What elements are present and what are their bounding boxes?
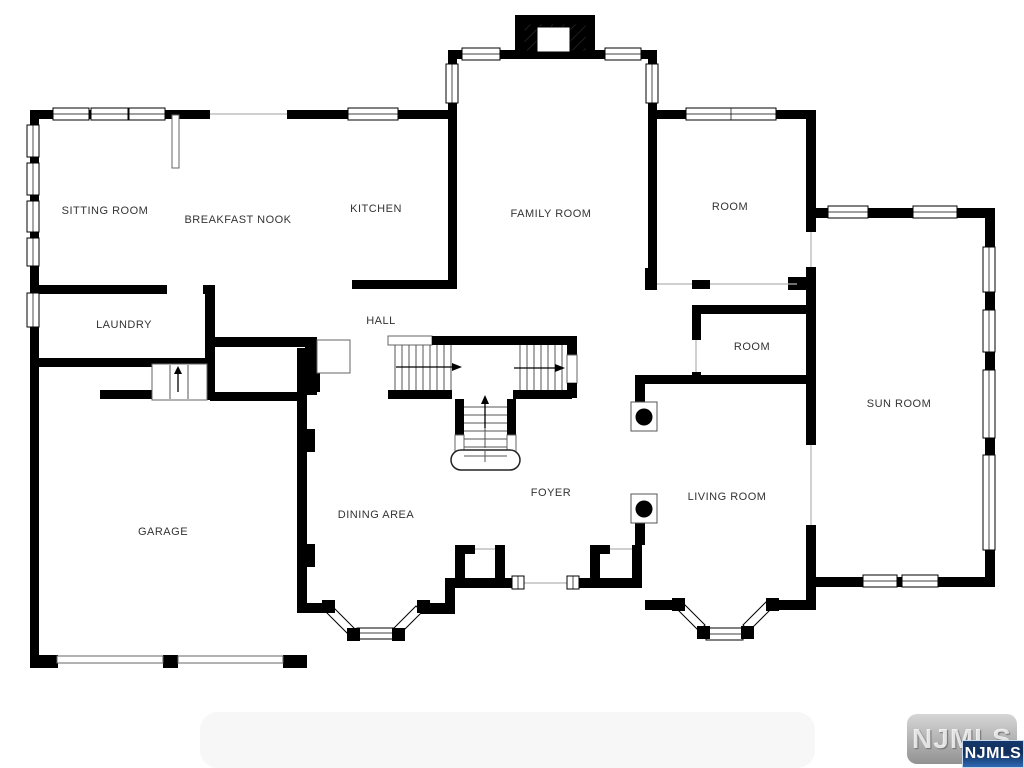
room-label-garage: GARAGE bbox=[138, 526, 188, 538]
main-staircase bbox=[388, 336, 577, 470]
closets bbox=[172, 115, 350, 373]
room-label-foyer: FOYER bbox=[531, 487, 571, 499]
room-label-room-middle: ROOM bbox=[734, 341, 770, 353]
garage-entry-steps bbox=[152, 364, 207, 400]
dining-bay-window bbox=[322, 600, 430, 641]
room-label-sun-room: SUN ROOM bbox=[867, 398, 932, 410]
njmls-badge: NJMLS bbox=[962, 740, 1024, 768]
floor-plan: SITTING ROOM BREAKFAST NOOK KITCHEN FAMI… bbox=[0, 0, 1024, 768]
room-label-living-room: LIVING ROOM bbox=[688, 491, 767, 503]
chimney bbox=[515, 15, 595, 59]
room-label-hall: HALL bbox=[366, 315, 396, 327]
room-label-laundry: LAUNDRY bbox=[96, 319, 152, 331]
room-label-breakfast-nook: BREAKFAST NOOK bbox=[184, 214, 291, 226]
columns bbox=[631, 402, 657, 523]
room-label-room-upper: ROOM bbox=[712, 201, 748, 213]
room-label-sitting-room: SITTING ROOM bbox=[62, 205, 149, 217]
room-label-family-room: FAMILY ROOM bbox=[511, 208, 592, 220]
living-bay-window bbox=[672, 598, 779, 640]
room-label-kitchen: KITCHEN bbox=[350, 203, 402, 215]
room-label-dining-area: DINING AREA bbox=[338, 509, 414, 521]
floor-plan-drawing bbox=[0, 0, 1024, 768]
